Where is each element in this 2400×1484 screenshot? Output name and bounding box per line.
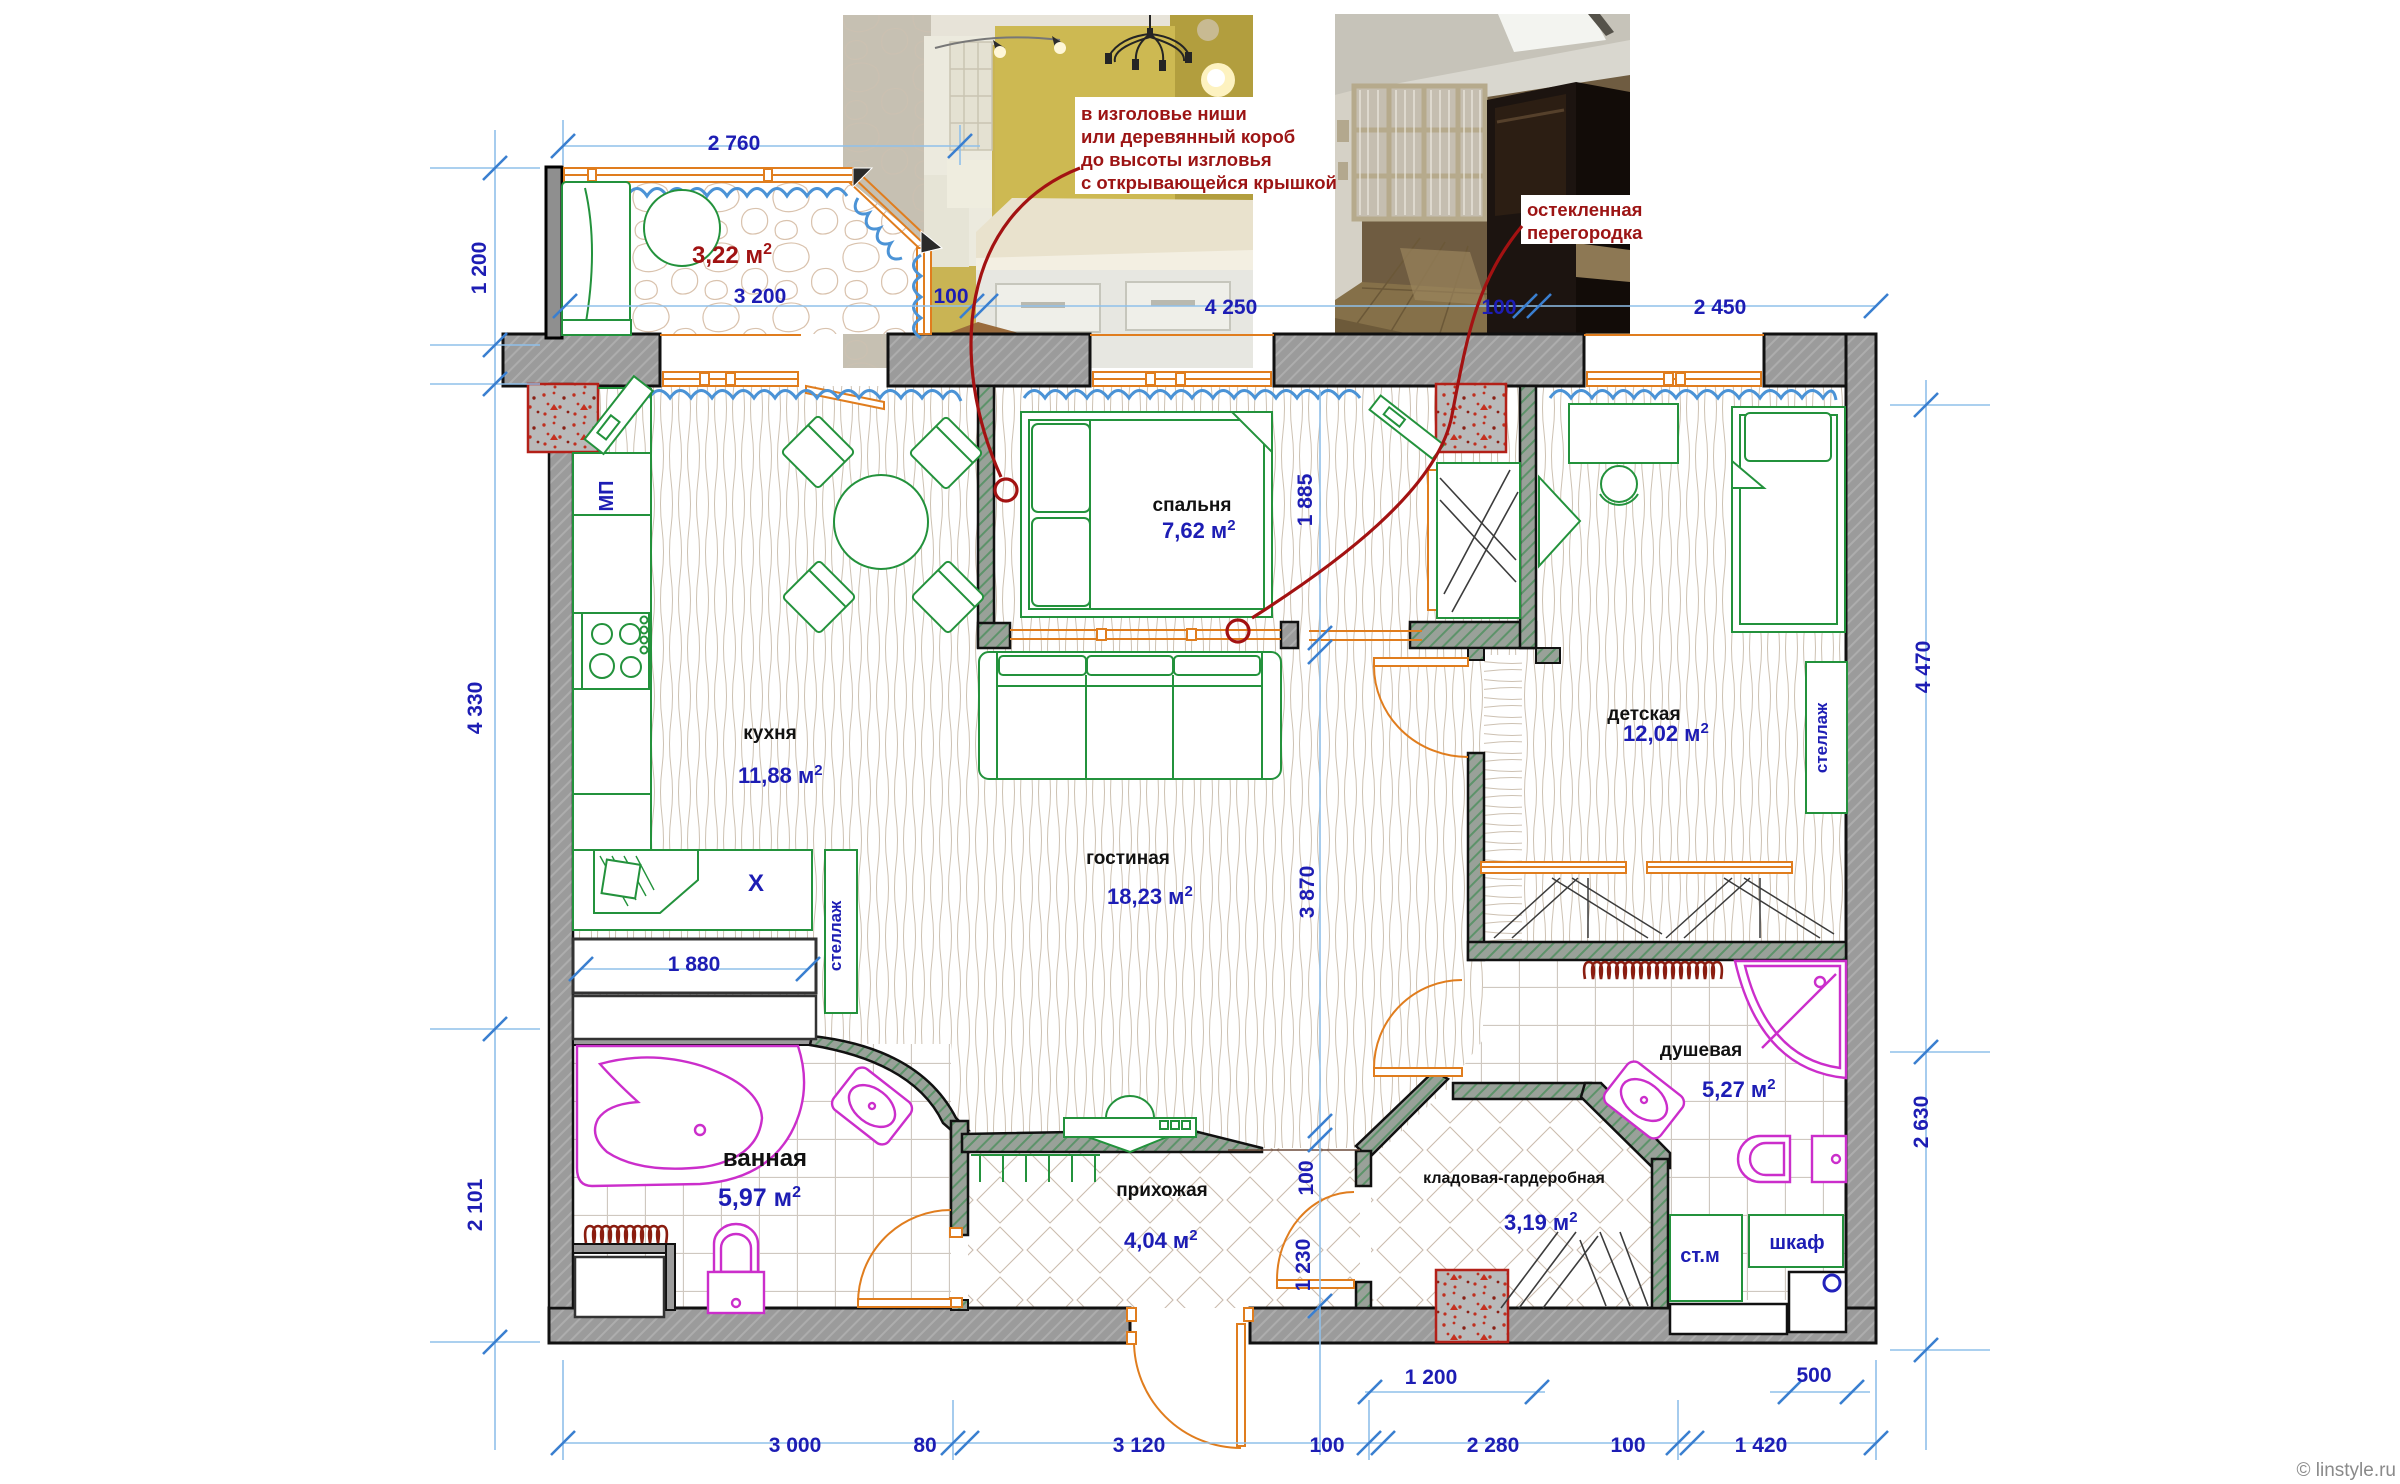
svg-text:X: X bbox=[748, 870, 764, 897]
svg-text:11,88 м2: 11,88 м2 bbox=[738, 762, 823, 788]
svg-text:4 470: 4 470 bbox=[1912, 641, 1935, 694]
svg-text:2 450: 2 450 bbox=[1694, 296, 1747, 319]
svg-text:ванная: ванная bbox=[723, 1145, 807, 1172]
svg-text:4,04 м2: 4,04 м2 bbox=[1124, 1227, 1198, 1253]
svg-text:3,22 м2: 3,22 м2 bbox=[692, 241, 772, 269]
svg-text:кладовая-гардеробная: кладовая-гардеробная bbox=[1423, 1170, 1605, 1187]
svg-text:1 420: 1 420 bbox=[1735, 1434, 1788, 1457]
svg-text:3 120: 3 120 bbox=[1113, 1434, 1166, 1457]
svg-text:1 880: 1 880 bbox=[668, 953, 721, 976]
svg-text:2 280: 2 280 bbox=[1467, 1434, 1520, 1457]
svg-text:душевая: душевая bbox=[1660, 1040, 1742, 1061]
svg-text:100: 100 bbox=[1309, 1434, 1344, 1457]
svg-text:стеллаж: стеллаж bbox=[826, 900, 845, 971]
svg-text:стеллаж: стеллаж bbox=[1812, 702, 1831, 773]
svg-text:100: 100 bbox=[1295, 1160, 1318, 1195]
svg-text:2 630: 2 630 bbox=[1910, 1096, 1933, 1149]
svg-text:3 000: 3 000 bbox=[769, 1434, 822, 1457]
svg-text:© linstyle.ru: © linstyle.ru bbox=[2296, 1460, 2396, 1481]
svg-text:спальня: спальня bbox=[1153, 495, 1232, 516]
svg-text:в изголовье ниши: в изголовье ниши bbox=[1081, 103, 1247, 124]
svg-text:1 200: 1 200 bbox=[468, 242, 491, 295]
svg-text:1 200: 1 200 bbox=[1405, 1366, 1458, 1389]
svg-text:1 885: 1 885 bbox=[1294, 473, 1317, 526]
svg-text:прихожая: прихожая bbox=[1116, 1180, 1208, 1201]
svg-text:ст.м: ст.м bbox=[1680, 1245, 1720, 1267]
svg-text:до высоты изгловья: до высоты изгловья bbox=[1081, 149, 1272, 170]
svg-text:4 250: 4 250 bbox=[1205, 296, 1258, 319]
svg-text:1 230: 1 230 bbox=[1292, 1239, 1315, 1292]
svg-text:остекленная: остекленная bbox=[1527, 199, 1642, 220]
svg-text:18,23 м2: 18,23 м2 bbox=[1107, 883, 1193, 909]
svg-text:12,02 м2: 12,02 м2 bbox=[1623, 720, 1709, 746]
svg-text:3,19 м2: 3,19 м2 bbox=[1504, 1209, 1578, 1235]
svg-text:3 870: 3 870 bbox=[1296, 866, 1319, 919]
svg-text:кухня: кухня bbox=[743, 723, 796, 744]
svg-text:3 200: 3 200 bbox=[734, 285, 787, 308]
svg-text:шкаф: шкаф bbox=[1769, 1232, 1824, 1254]
svg-text:4 330: 4 330 bbox=[464, 682, 487, 735]
svg-text:МП: МП bbox=[596, 480, 618, 511]
svg-text:5,27 м2: 5,27 м2 bbox=[1702, 1076, 1776, 1102]
svg-text:500: 500 bbox=[1796, 1364, 1831, 1387]
svg-text:100: 100 bbox=[1481, 296, 1516, 319]
svg-text:с открывающейся крышкой: с открывающейся крышкой bbox=[1081, 172, 1337, 193]
svg-text:2 101: 2 101 bbox=[464, 1178, 487, 1231]
svg-text:гостиная: гостиная bbox=[1086, 848, 1170, 869]
svg-text:2 760: 2 760 bbox=[708, 132, 761, 155]
svg-text:100: 100 bbox=[1610, 1434, 1645, 1457]
svg-text:5,97 м2: 5,97 м2 bbox=[718, 1184, 801, 1212]
svg-text:перегородка: перегородка bbox=[1527, 222, 1643, 243]
svg-text:или деревянный короб: или деревянный короб bbox=[1081, 126, 1295, 147]
svg-text:80: 80 bbox=[913, 1434, 936, 1457]
svg-text:7,62 м2: 7,62 м2 bbox=[1162, 517, 1236, 543]
svg-text:100: 100 bbox=[933, 285, 968, 308]
